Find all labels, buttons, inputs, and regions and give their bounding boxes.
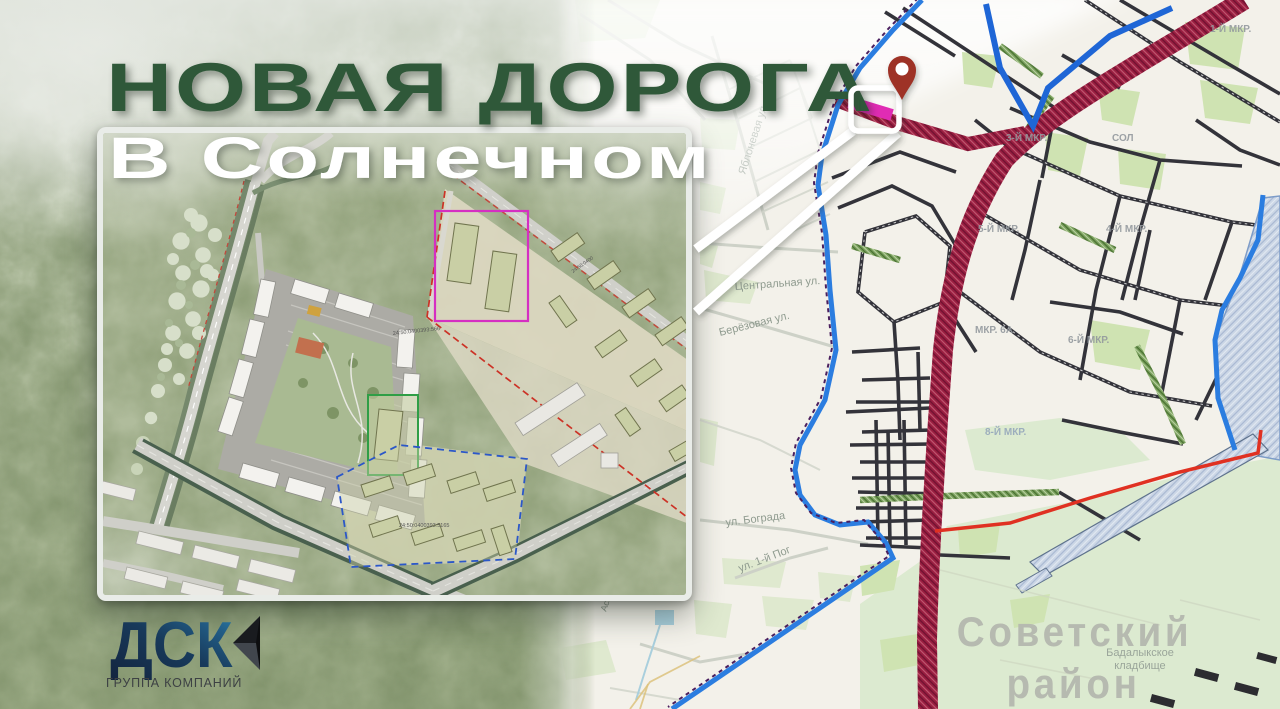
svg-text:ДСК: ДСК xyxy=(110,609,233,682)
svg-text:ГРУППА КОМПАНИЙ: ГРУППА КОМПАНИЙ xyxy=(106,675,242,690)
